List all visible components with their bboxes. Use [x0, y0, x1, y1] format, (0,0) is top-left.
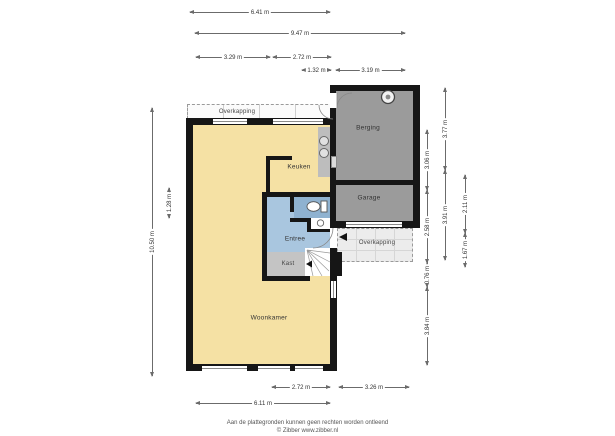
window-right-wall: [331, 281, 336, 298]
room-label-keuken: Keuken: [287, 164, 310, 171]
dim-top-641: 6.41 m: [190, 12, 330, 13]
entrance-arrow-icon: [339, 233, 347, 241]
dim-label: 1.67 m: [463, 239, 469, 261]
window-bottom-2: [258, 366, 290, 371]
dim-label: 10.50 m: [150, 229, 156, 255]
dim-label: 6.11 m: [252, 401, 274, 407]
dim-label: 3.19 m: [359, 68, 381, 74]
dim-left-1050: 10.50 m: [152, 108, 153, 376]
dim-label: 3.26 m: [363, 385, 385, 391]
footer-disclaimer: Aan de plattegronden kunnen geen rechten…: [0, 419, 615, 427]
dim-right-076: 0.76 m: [427, 263, 428, 287]
wall-entry-bottom: [262, 276, 310, 281]
dim-label: 3.91 m: [443, 204, 449, 226]
wall-entry-left: [262, 192, 267, 281]
window-bottom-1: [202, 366, 247, 371]
garage-door-opening: [346, 222, 402, 227]
canopy-top-area: [187, 104, 333, 119]
front-door-opening: [330, 228, 337, 248]
storage-door-opening: [330, 93, 337, 108]
room-label-kast: Kast: [282, 261, 295, 267]
dim-label: 0.76 m: [425, 264, 431, 286]
dim-right-306: 3.06 m: [427, 130, 428, 190]
dim-bottom-611: 6.11 m: [196, 403, 330, 404]
room-label-garage: Garage: [358, 195, 381, 202]
kitchen-side-door: [331, 156, 337, 168]
dim-label: 1.28 m: [167, 192, 173, 214]
dim-label: 6.41 m: [249, 10, 271, 16]
dim-bottom-326: 3.26 m: [339, 387, 409, 388]
window-top-2: [273, 119, 323, 124]
dim-label: 2.72 m: [291, 55, 313, 61]
dim-label: 2.58 m: [425, 215, 431, 237]
dim-top-272: 2.72 m: [273, 57, 331, 58]
dim-label: 3.29 m: [222, 55, 244, 61]
dim-right-211: 2.11 m: [465, 175, 466, 233]
dim-right-384: 3.84 m: [427, 287, 428, 365]
window-top-1: [213, 119, 247, 124]
wall-wc-bottom: [290, 218, 307, 222]
dim-right-258: 2.58 m: [427, 190, 428, 263]
room-label-entree: Entree: [285, 236, 305, 243]
room-label-berging: Berging: [356, 125, 380, 132]
dim-label: 9.47 m: [289, 31, 311, 37]
washbasin-niche: [311, 218, 330, 229]
dim-right-377: 3.77 m: [445, 88, 446, 170]
wall-entry-top: [264, 192, 330, 197]
room-label-canopy-right: Overkapping: [359, 240, 395, 246]
dim-right-391: 3.91 m: [445, 170, 446, 260]
wc-floor: [294, 197, 330, 218]
storage-floor: [336, 91, 413, 180]
dim-label: 3.06 m: [425, 149, 431, 171]
dim-top-132: 1.32 m: [302, 70, 331, 71]
wall-post-front-door: [330, 252, 342, 276]
wall-kitchen-stub-v: [266, 156, 270, 197]
footer-copyright: © Zibber www.zibber.nl: [0, 427, 615, 435]
dim-left-128: 1.28 m: [169, 188, 170, 218]
room-label-woonkamer: Woonkamer: [251, 315, 288, 322]
dim-label: 3.77 m: [443, 118, 449, 140]
dim-top-329: 3.29 m: [196, 57, 270, 58]
dim-label: 2.72 m: [290, 385, 312, 391]
dim-label: 1.32 m: [305, 68, 327, 74]
floorplan-canvas: Overkapping Berging Keuken Garage Entree…: [0, 0, 615, 436]
dim-label: 2.11 m: [463, 193, 469, 215]
dim-bottom-272: 2.72 m: [272, 387, 330, 388]
kitchen-counter: [318, 127, 330, 177]
wall-wc-left: [290, 197, 294, 212]
dim-right-167: 1.67 m: [465, 233, 466, 267]
dim-top-319: 3.19 m: [336, 70, 405, 71]
dim-top-947: 9.47 m: [195, 33, 405, 34]
wall-niche-bottom: [307, 229, 330, 232]
staircase: [305, 248, 330, 276]
room-label-canopy-top: Overkapping: [219, 109, 255, 115]
dim-label: 3.84 m: [425, 315, 431, 337]
garage-floor: [336, 185, 413, 221]
window-bottom-3: [295, 366, 323, 371]
